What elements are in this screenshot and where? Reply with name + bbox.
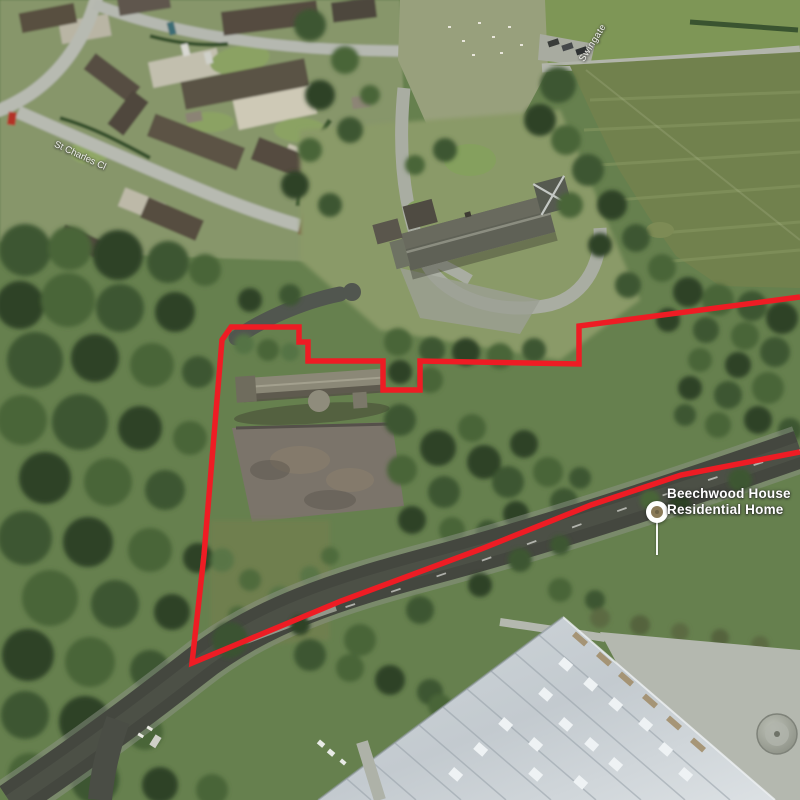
place-label-line1: Beechwood House: [667, 486, 791, 502]
parking-yard: [232, 422, 404, 522]
place-marker-stem: [656, 522, 658, 555]
aerial-imagery: [0, 0, 800, 800]
place-marker[interactable]: [646, 501, 668, 523]
satellite-map-viewport[interactable]: Beechwood House Residential Home St Char…: [0, 0, 800, 800]
place-label[interactable]: Beechwood House Residential Home: [667, 486, 791, 518]
place-label-line2: Residential Home: [667, 502, 791, 518]
